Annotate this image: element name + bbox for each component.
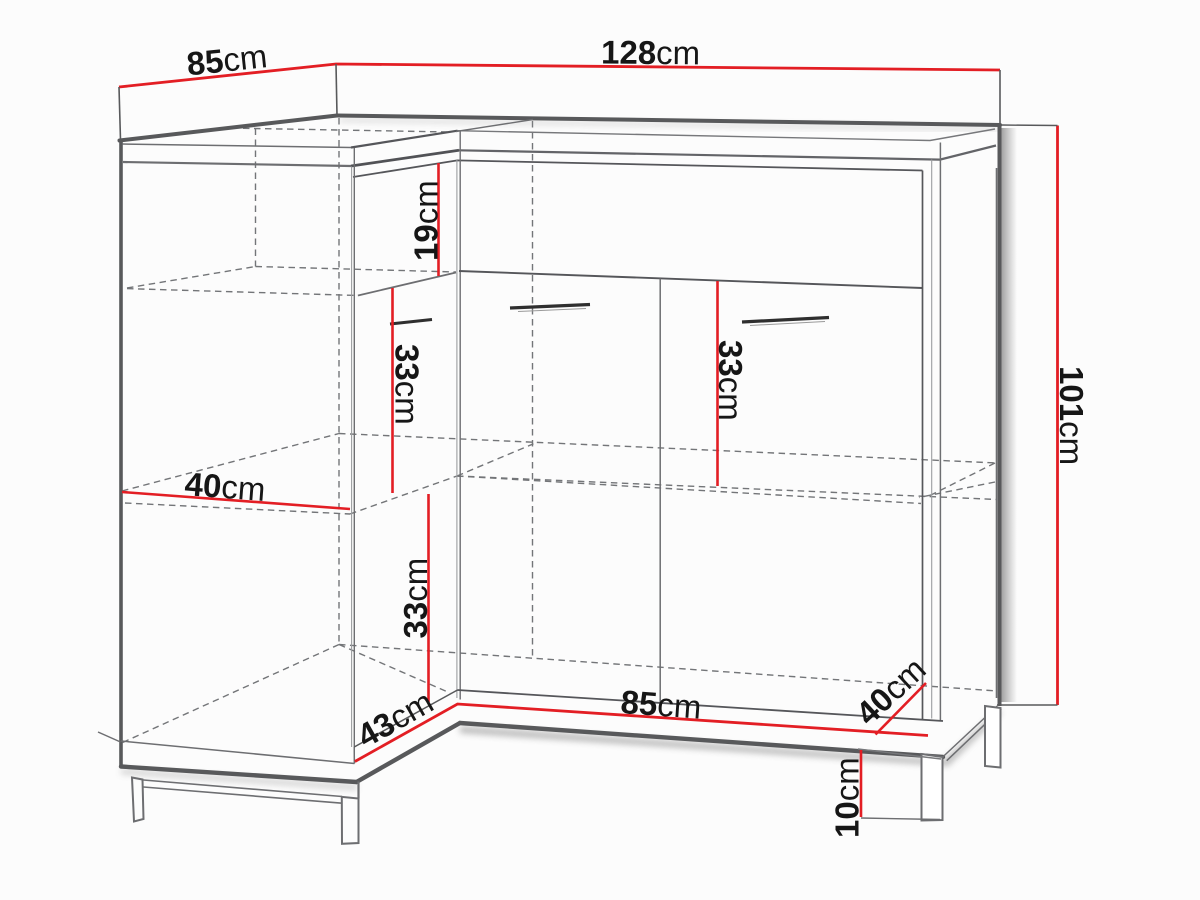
svg-text:40cm: 40cm	[183, 465, 266, 508]
svg-text:128cm: 128cm	[601, 34, 700, 72]
svg-text:19cm: 19cm	[408, 180, 445, 261]
svg-text:33cm: 33cm	[712, 340, 749, 421]
svg-text:10cm: 10cm	[829, 757, 866, 838]
svg-text:33cm: 33cm	[389, 344, 426, 425]
svg-text:85cm: 85cm	[619, 683, 702, 726]
svg-text:101cm: 101cm	[1053, 366, 1090, 465]
svg-text:33cm: 33cm	[397, 558, 434, 639]
